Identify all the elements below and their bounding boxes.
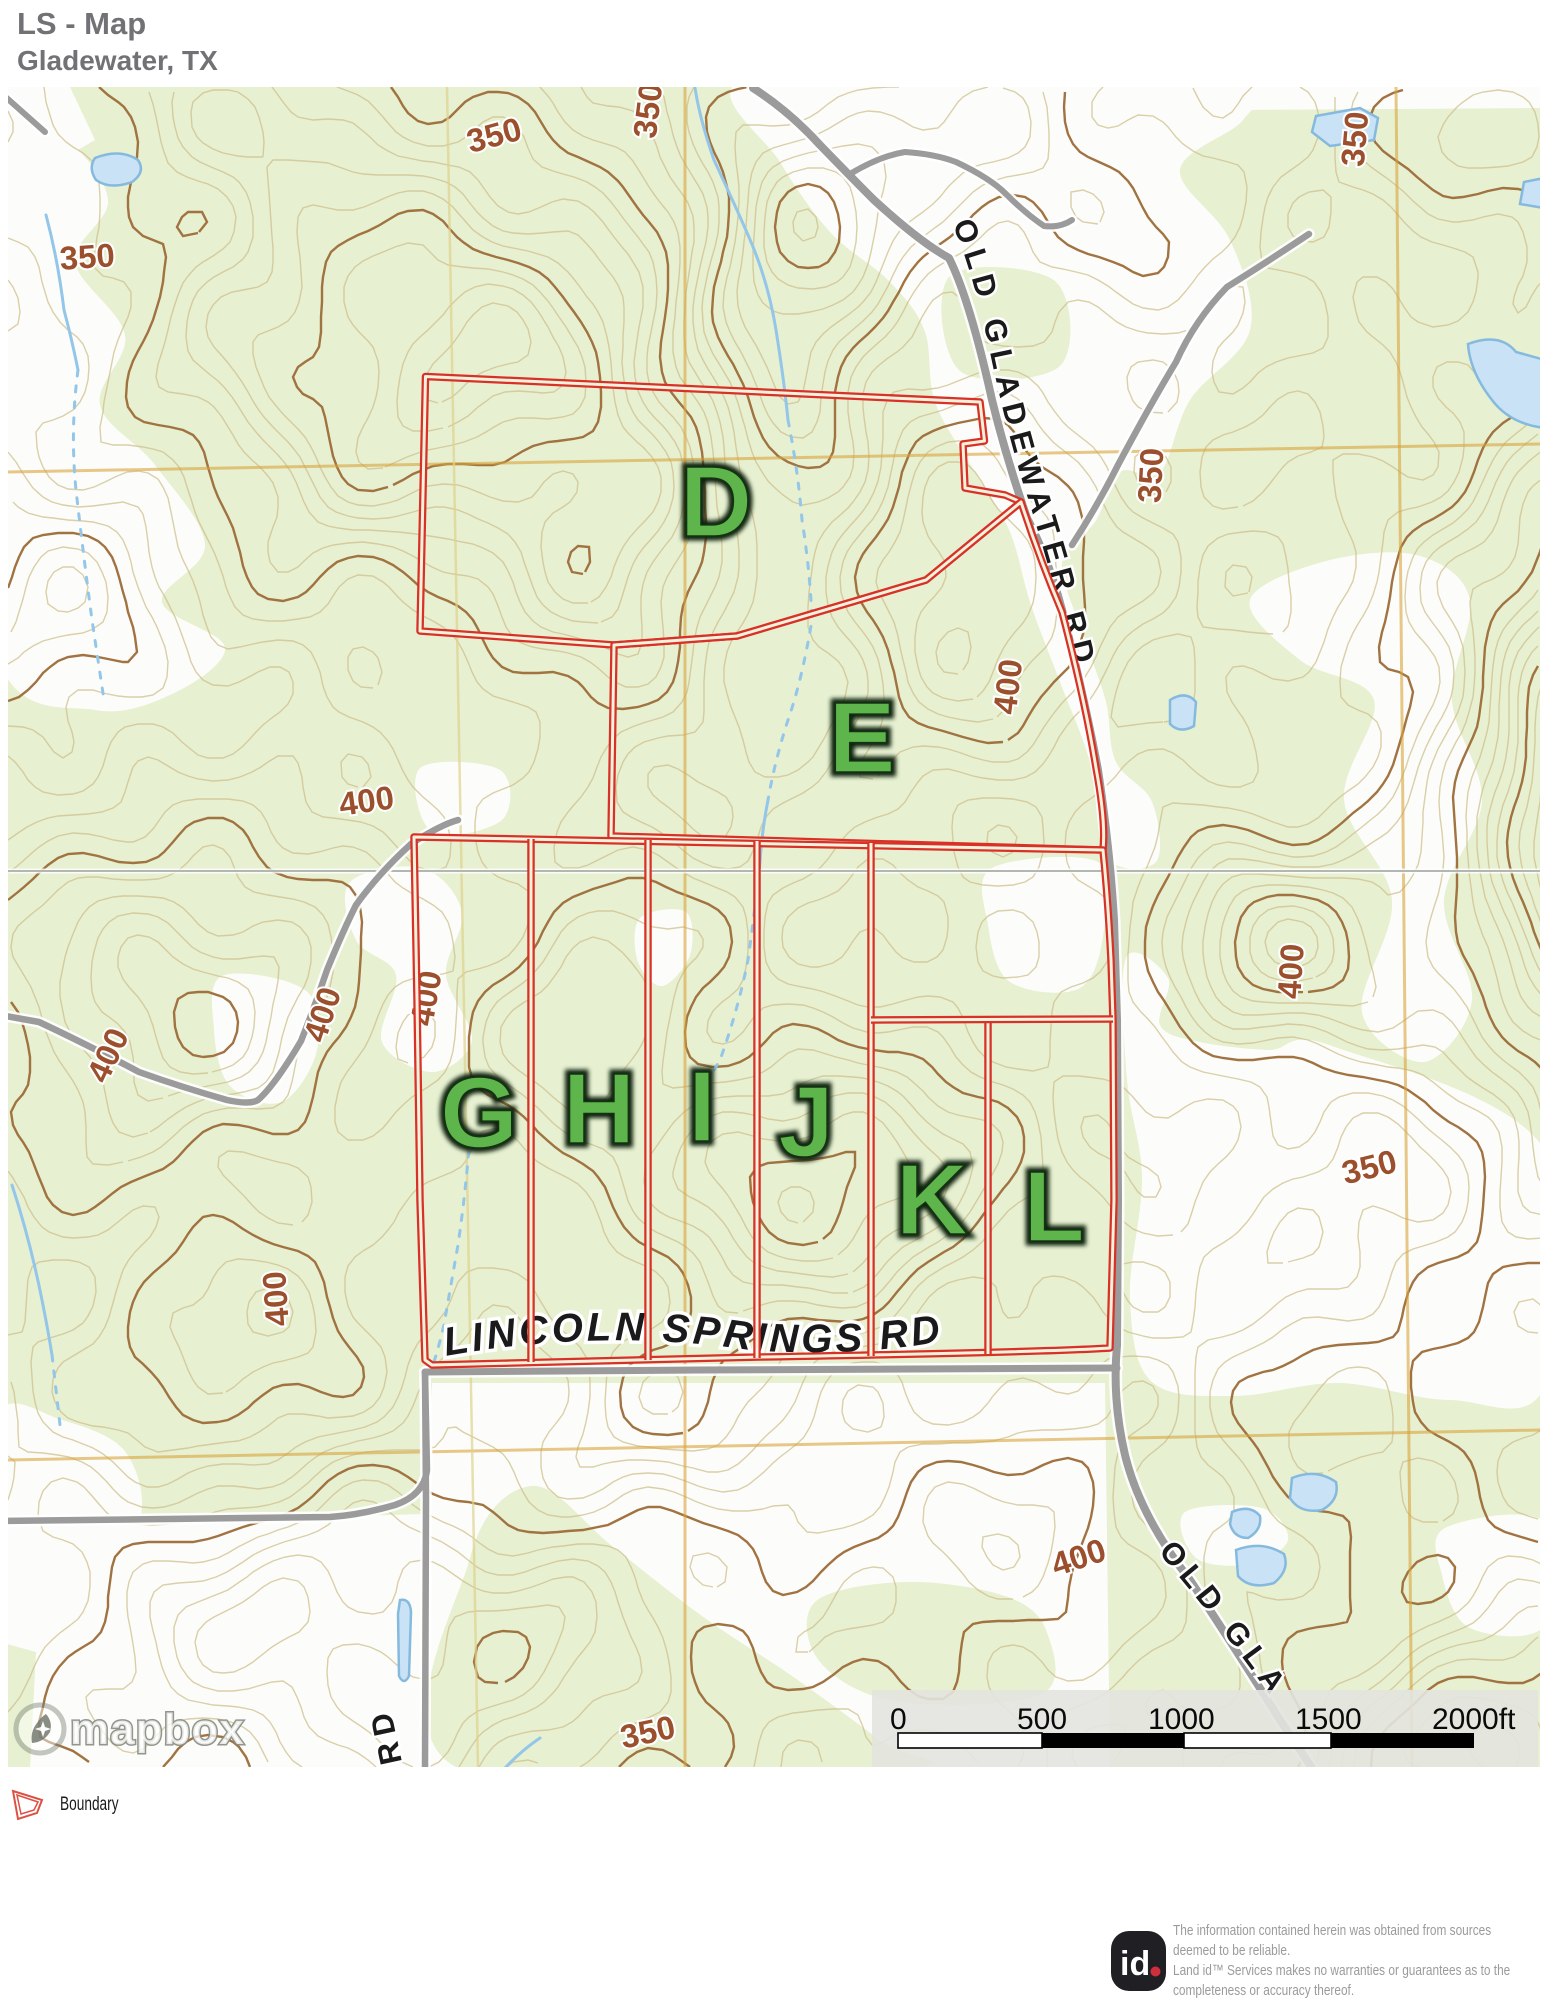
svg-text:1500: 1500 xyxy=(1295,1703,1362,1736)
svg-text:E: E xyxy=(829,682,896,794)
svg-text:D: D xyxy=(680,446,752,558)
svg-text:id: id xyxy=(1120,1945,1150,1983)
svg-text:350: 350 xyxy=(58,236,116,277)
svg-text:1000: 1000 xyxy=(1148,1703,1215,1736)
svg-text:mapbox: mapbox xyxy=(70,1705,245,1754)
svg-text:2000ft: 2000ft xyxy=(1432,1703,1516,1736)
svg-text:H: H xyxy=(563,1053,635,1165)
svg-text:G: G xyxy=(440,1057,518,1169)
svg-text:J: J xyxy=(778,1066,834,1178)
svg-text:350: 350 xyxy=(626,87,669,140)
svg-text:K: K xyxy=(896,1144,968,1256)
svg-text:500: 500 xyxy=(1017,1703,1067,1736)
svg-text:400: 400 xyxy=(986,657,1029,716)
svg-text:350: 350 xyxy=(1334,110,1376,168)
svg-text:L: L xyxy=(1023,1151,1084,1263)
svg-text:400: 400 xyxy=(337,778,397,822)
svg-text:400: 400 xyxy=(255,1270,296,1328)
svg-text:I: I xyxy=(688,1051,716,1163)
svg-text:400: 400 xyxy=(1270,942,1311,1000)
svg-text:350: 350 xyxy=(1131,447,1171,504)
svg-text:0: 0 xyxy=(890,1703,907,1736)
